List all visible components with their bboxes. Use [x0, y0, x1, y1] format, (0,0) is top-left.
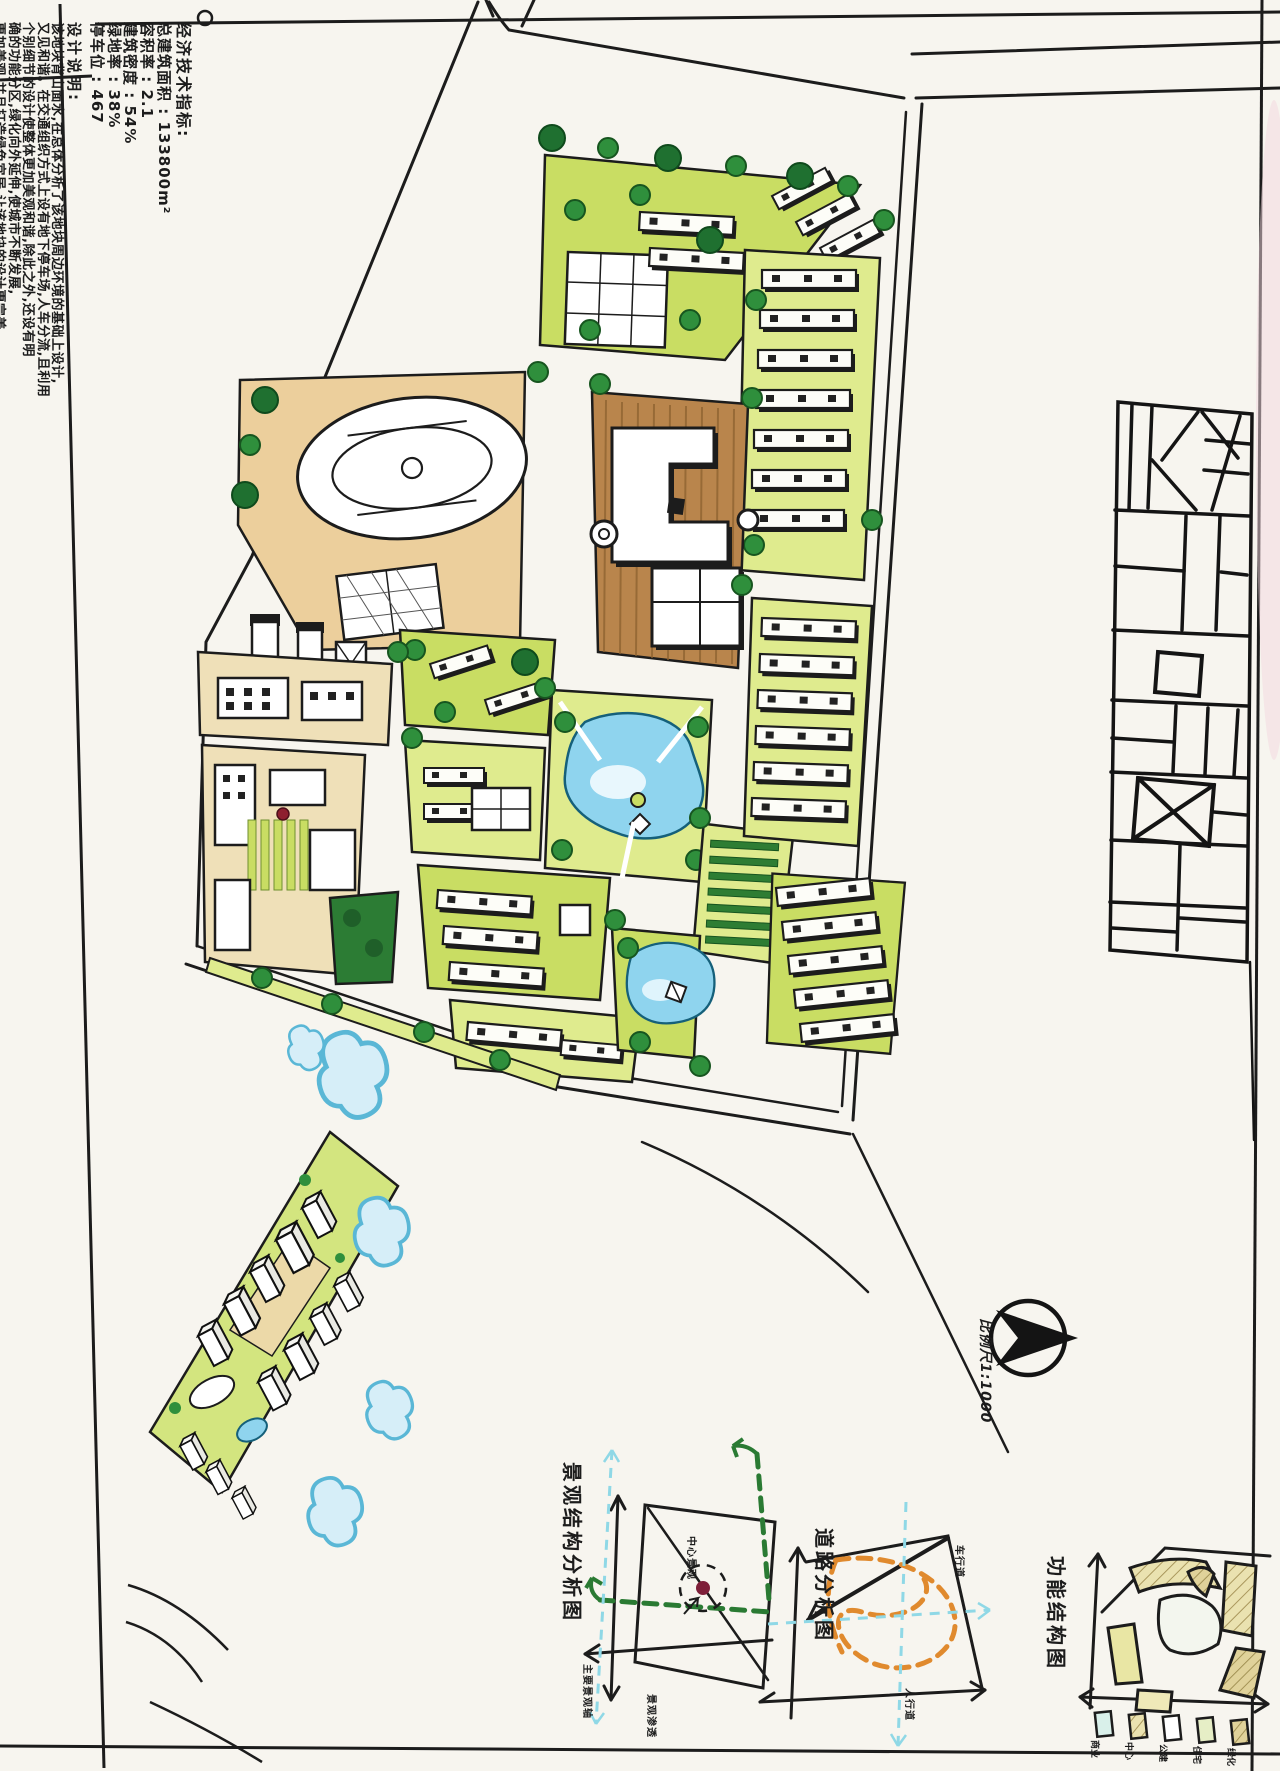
- sketch-roads: [126, 1585, 262, 1762]
- legend-label-residential: 住宅: [1191, 1746, 1204, 1764]
- indicator-total-area: 总建筑面积 : 133800m²: [155, 22, 172, 670]
- description-line: 又见和谐。在交通组织方式上设有地下停车场,人车分流,且利用: [34, 22, 49, 670]
- landscape-bottom-note: 景观渗透: [645, 1694, 660, 1738]
- drawing-sheet: { "sheet": { "indicators": { "title": "经…: [0, 0, 1280, 1771]
- landscape-diagram-title: 景观结构分析图: [559, 1462, 588, 1623]
- east-housing-block: [744, 598, 872, 846]
- se-housing-block: [767, 874, 905, 1054]
- ne-housing-block: [738, 250, 880, 580]
- description-title: 设计说明:: [65, 22, 82, 670]
- landscape-axis-note: 主要景观轴: [581, 1664, 596, 1719]
- description-line: 确的功能分区,绿化向外延伸,使城市不断发展,: [5, 22, 20, 670]
- south-pond-block: [612, 928, 714, 1058]
- function-diagram-title: 功能结构图: [1043, 1556, 1072, 1671]
- traffic-diagram-title: 道路分析图: [811, 1528, 840, 1643]
- site-plan-drawing: [0, 0, 1280, 1771]
- indicator-density: 建筑密度 : 54%: [122, 22, 139, 670]
- legend-label-center: 中心: [1123, 1742, 1136, 1760]
- legend-label-green: 绿化: [1225, 1748, 1238, 1766]
- description-line: 该地块背山面水,在总体分析了该地块周边环境的基础上设计,: [49, 22, 64, 670]
- location-sketch: [1110, 402, 1254, 1140]
- basketball-court: [336, 564, 443, 640]
- flag-dot: [277, 808, 289, 820]
- indicator-far: 容积率 : 2.1: [139, 22, 156, 670]
- indicators-title: 经济技术指标:: [174, 22, 192, 670]
- traffic-diagram: [760, 1502, 990, 1746]
- perspective-sketch: [126, 1020, 422, 1762]
- traffic-vehicle-note2: 车行道: [953, 1545, 968, 1578]
- central-pond-block: [545, 690, 712, 882]
- spec-text-block: 经济技术指标: 总建筑面积 : 133800m² 容积率 : 2.1 建筑密度 …: [0, 22, 192, 670]
- indicator-green-ratio: 绿地率 : 38%: [105, 22, 122, 670]
- scale-label: 比例尺1:1000: [976, 1318, 996, 1423]
- west-campus-block: [198, 652, 398, 984]
- landscape-center-note: 中心景观: [685, 1536, 700, 1580]
- central-plaza: [591, 392, 758, 668]
- legend-label-public: 公建: [1157, 1744, 1170, 1762]
- description-line: 更加美观,并且打造绿色宜居,让该地块的设计更完美。: [0, 22, 5, 670]
- function-legend-swatches: [1095, 1711, 1249, 1745]
- description-line: 个别细节的设计使整体更加美观和谐,除此之外,还设有明: [20, 22, 35, 670]
- legend-label-commercial: 商业: [1089, 1740, 1102, 1758]
- indicator-parking: 停车位 : 467: [88, 22, 105, 670]
- north-arrow: [991, 1301, 1078, 1375]
- function-diagram: [1080, 1548, 1270, 1745]
- traffic-pedestrian-note: 人行道: [903, 1688, 918, 1721]
- landscape-diagram: [585, 1439, 775, 1724]
